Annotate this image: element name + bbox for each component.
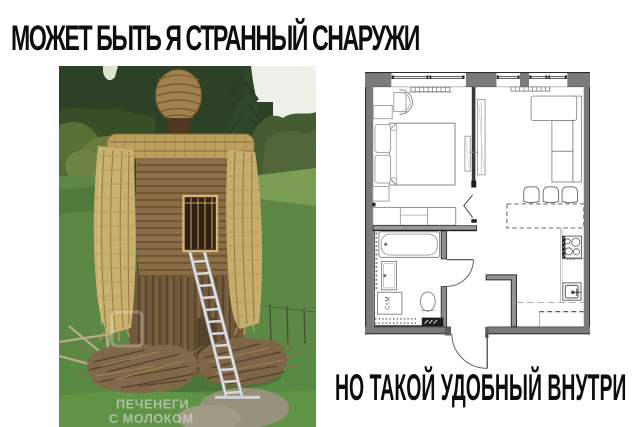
svg-text:Ст.М: Ст.М (386, 297, 392, 310)
svg-text:С МОЛОКОМ: С МОЛОКОМ (109, 412, 194, 426)
svg-text:ПЕЧЕНЕГИ: ПЕЧЕНЕГИ (116, 398, 189, 412)
